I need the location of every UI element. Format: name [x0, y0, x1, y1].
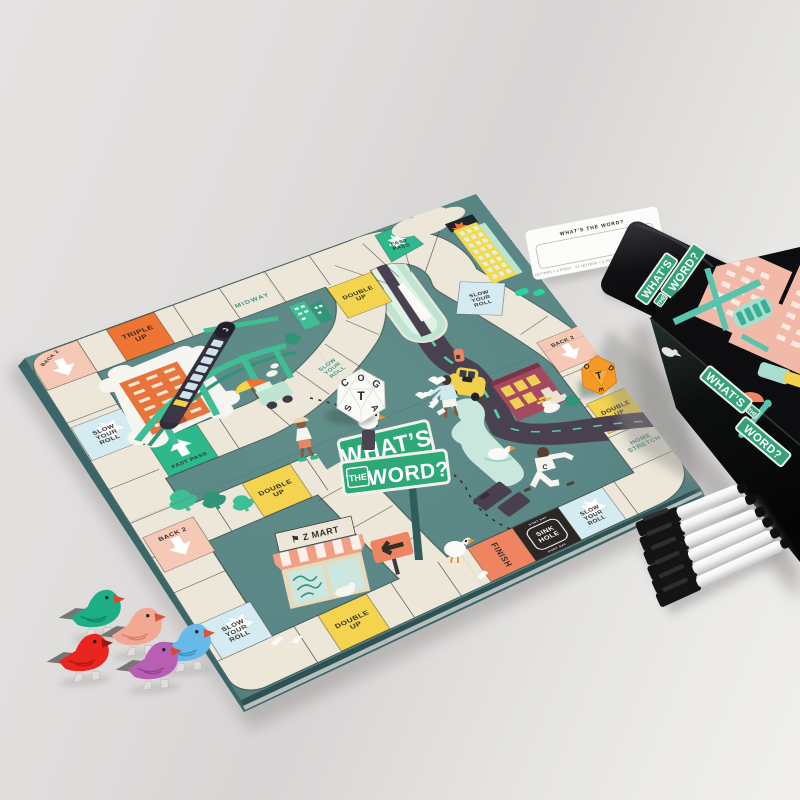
svg-text:C: C: [542, 464, 548, 471]
svg-text:T: T: [357, 389, 365, 403]
svg-text:O: O: [357, 373, 364, 383]
